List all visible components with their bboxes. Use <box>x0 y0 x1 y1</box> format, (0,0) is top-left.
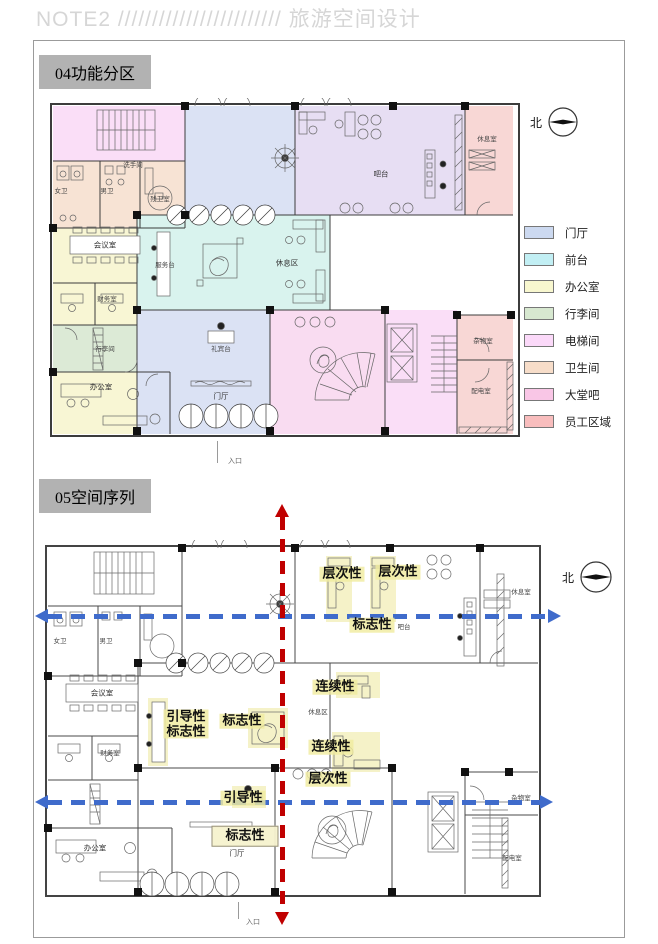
room2-label-staff-lounge: 休息室 <box>511 586 531 596</box>
room-label-storage: 杂物室 <box>473 335 493 345</box>
entrance-label-2: 入口 <box>246 917 260 927</box>
room-label-office: 办公室 <box>90 382 113 393</box>
north-label-2: 北 <box>562 569 574 586</box>
room-label-accessible-wc: 残卫室 <box>150 193 170 203</box>
north-arrow-1: 北 <box>530 104 581 140</box>
room2-label-office: 办公室 <box>84 843 107 854</box>
sequence-axis-vertical <box>280 517 285 912</box>
axis2-right-arrow-icon <box>540 795 553 809</box>
legend-swatch-lobby <box>524 226 554 239</box>
axis2-left-arrow-icon <box>35 795 48 809</box>
annotation-landmark-2: 标志性 <box>219 714 264 729</box>
room-label-service-desk: 服务台 <box>155 259 175 269</box>
sequence-axis-horizontal-2 <box>48 800 540 805</box>
annotation-hierarchy-2: 层次性 <box>375 565 420 580</box>
legend-label-elevator: 电梯间 <box>565 333 600 349</box>
legend-swatch-lobby-bar <box>524 388 554 401</box>
annotation-guidance-landmark: 引导性 标志性 <box>163 709 208 738</box>
entrance-tick-2 <box>238 902 239 919</box>
room-label-luggage: 行李间 <box>95 343 115 353</box>
axis1-right-arrow-icon <box>548 609 561 623</box>
annotation-landmark-1: 标志性 <box>349 618 394 633</box>
room-label-rest-area: 休息区 <box>276 258 299 269</box>
floorplan-functional-zoning: 女卫 男卫 洗手间 残卫室 会议室 财务室 行李间 办公室 服务台 休息区 礼宾… <box>45 98 525 443</box>
room2-label-power: 配电室 <box>502 852 522 862</box>
legend-item-elevator: 电梯间 <box>524 327 611 354</box>
legend-label-front-desk: 前台 <box>565 252 588 268</box>
room-label-power: 配电室 <box>471 385 491 395</box>
annotation-continuity-2: 连续性 <box>308 740 353 755</box>
legend-label-lobby: 门厅 <box>565 225 588 241</box>
room-label-concierge: 礼宾台 <box>211 343 231 353</box>
legend-item-front-desk: 前台 <box>524 246 611 273</box>
legend-item-lobby: 门厅 <box>524 219 611 246</box>
room2-label-rest-area: 休息区 <box>308 706 328 716</box>
sequence-axis-horizontal-1 <box>48 614 548 619</box>
page-title: NOTE2 //////////////////////// 旅游空间设计 <box>36 3 421 33</box>
floorplan-spatial-sequence: 女卫 男卫 会议室 财务室 办公室 休息区 吧台 休息室 杂物室 配电室 门厅 … <box>40 540 555 910</box>
legend-swatch-staff-area <box>524 415 554 428</box>
room2-label-female-wc: 女卫 <box>54 635 67 645</box>
annotation-continuity-1: 连续性 <box>312 680 357 695</box>
axis3-down-arrow-icon <box>275 912 289 925</box>
annotation-hierarchy-1: 层次性 <box>319 567 364 582</box>
annotation-guidance-2: 引导性 <box>220 791 265 806</box>
axis1-left-arrow-icon <box>35 609 48 623</box>
section2-title: 05空间序列 <box>39 479 151 513</box>
annotation-landmark-3: 标志性 <box>211 826 278 847</box>
room2-label-bar: 吧台 <box>398 621 411 631</box>
room2-label-lobby: 门厅 <box>230 848 245 859</box>
legend-label-staff-area: 员工区域 <box>565 414 611 430</box>
legend-label-toilet: 卫生间 <box>565 360 600 376</box>
room-label-male-wc: 男卫 <box>101 185 114 195</box>
legend-item-staff-area: 员工区域 <box>524 408 611 435</box>
legend-label-luggage: 行李间 <box>565 306 600 322</box>
legend: 门厅 前台 办公室 行李间 电梯间 卫生间 大堂吧 员工区域 <box>524 219 611 435</box>
entrance-label-1: 入口 <box>228 456 242 466</box>
legend-item-lobby-bar: 大堂吧 <box>524 381 611 408</box>
compass-icon-2 <box>577 558 615 596</box>
room2-label-finance: 财务室 <box>100 747 120 757</box>
room-label-staff-lounge: 休息室 <box>477 133 497 143</box>
compass-icon-1 <box>545 104 581 140</box>
section1-title: 04功能分区 <box>39 55 151 89</box>
room-label-finance: 财务室 <box>97 293 117 303</box>
legend-swatch-office <box>524 280 554 293</box>
annotation-guidance-line1: 引导性 <box>166 709 205 724</box>
room-label-lobby: 门厅 <box>214 391 229 402</box>
legend-swatch-luggage <box>524 307 554 320</box>
room-label-bar: 吧台 <box>374 169 389 180</box>
floorplan2-drawing <box>40 540 555 910</box>
legend-item-luggage: 行李间 <box>524 300 611 327</box>
north-arrow-2: 北 <box>562 558 615 596</box>
legend-item-toilet: 卫生间 <box>524 354 611 381</box>
page: { "header": { "title": "NOTE2 //////////… <box>0 0 658 944</box>
room2-label-meeting: 会议室 <box>91 688 114 699</box>
legend-label-lobby-bar: 大堂吧 <box>565 387 600 403</box>
legend-swatch-front-desk <box>524 253 554 266</box>
legend-label-office: 办公室 <box>565 279 600 295</box>
legend-swatch-toilet <box>524 361 554 374</box>
room-label-washroom: 洗手间 <box>123 159 143 169</box>
legend-item-office: 办公室 <box>524 273 611 300</box>
room-label-meeting: 会议室 <box>94 240 117 251</box>
entrance-tick-1 <box>217 441 218 463</box>
room2-label-male-wc: 男卫 <box>100 635 113 645</box>
axis3-up-arrow-icon <box>275 504 289 517</box>
room-label-female-wc: 女卫 <box>55 185 68 195</box>
legend-swatch-elevator <box>524 334 554 347</box>
annotation-hierarchy-3: 层次性 <box>305 772 350 787</box>
annotation-guidance-line2: 标志性 <box>166 724 205 739</box>
north-label-1: 北 <box>530 114 542 131</box>
floorplan1-drawing <box>45 98 525 443</box>
